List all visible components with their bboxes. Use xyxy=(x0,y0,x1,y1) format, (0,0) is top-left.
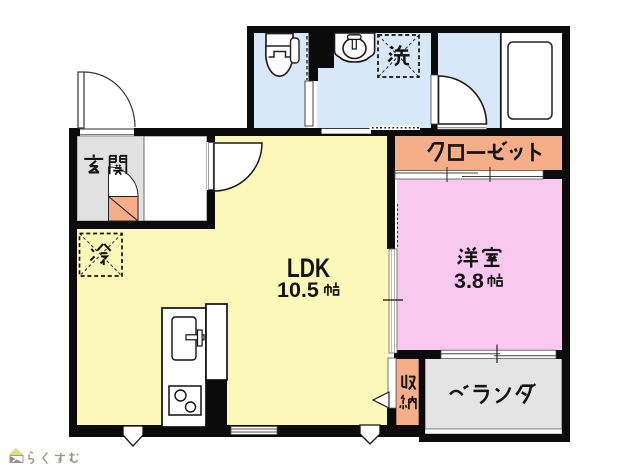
svg-text:10.5: 10.5 xyxy=(277,278,319,302)
svg-text:3.8: 3.8 xyxy=(454,269,484,293)
